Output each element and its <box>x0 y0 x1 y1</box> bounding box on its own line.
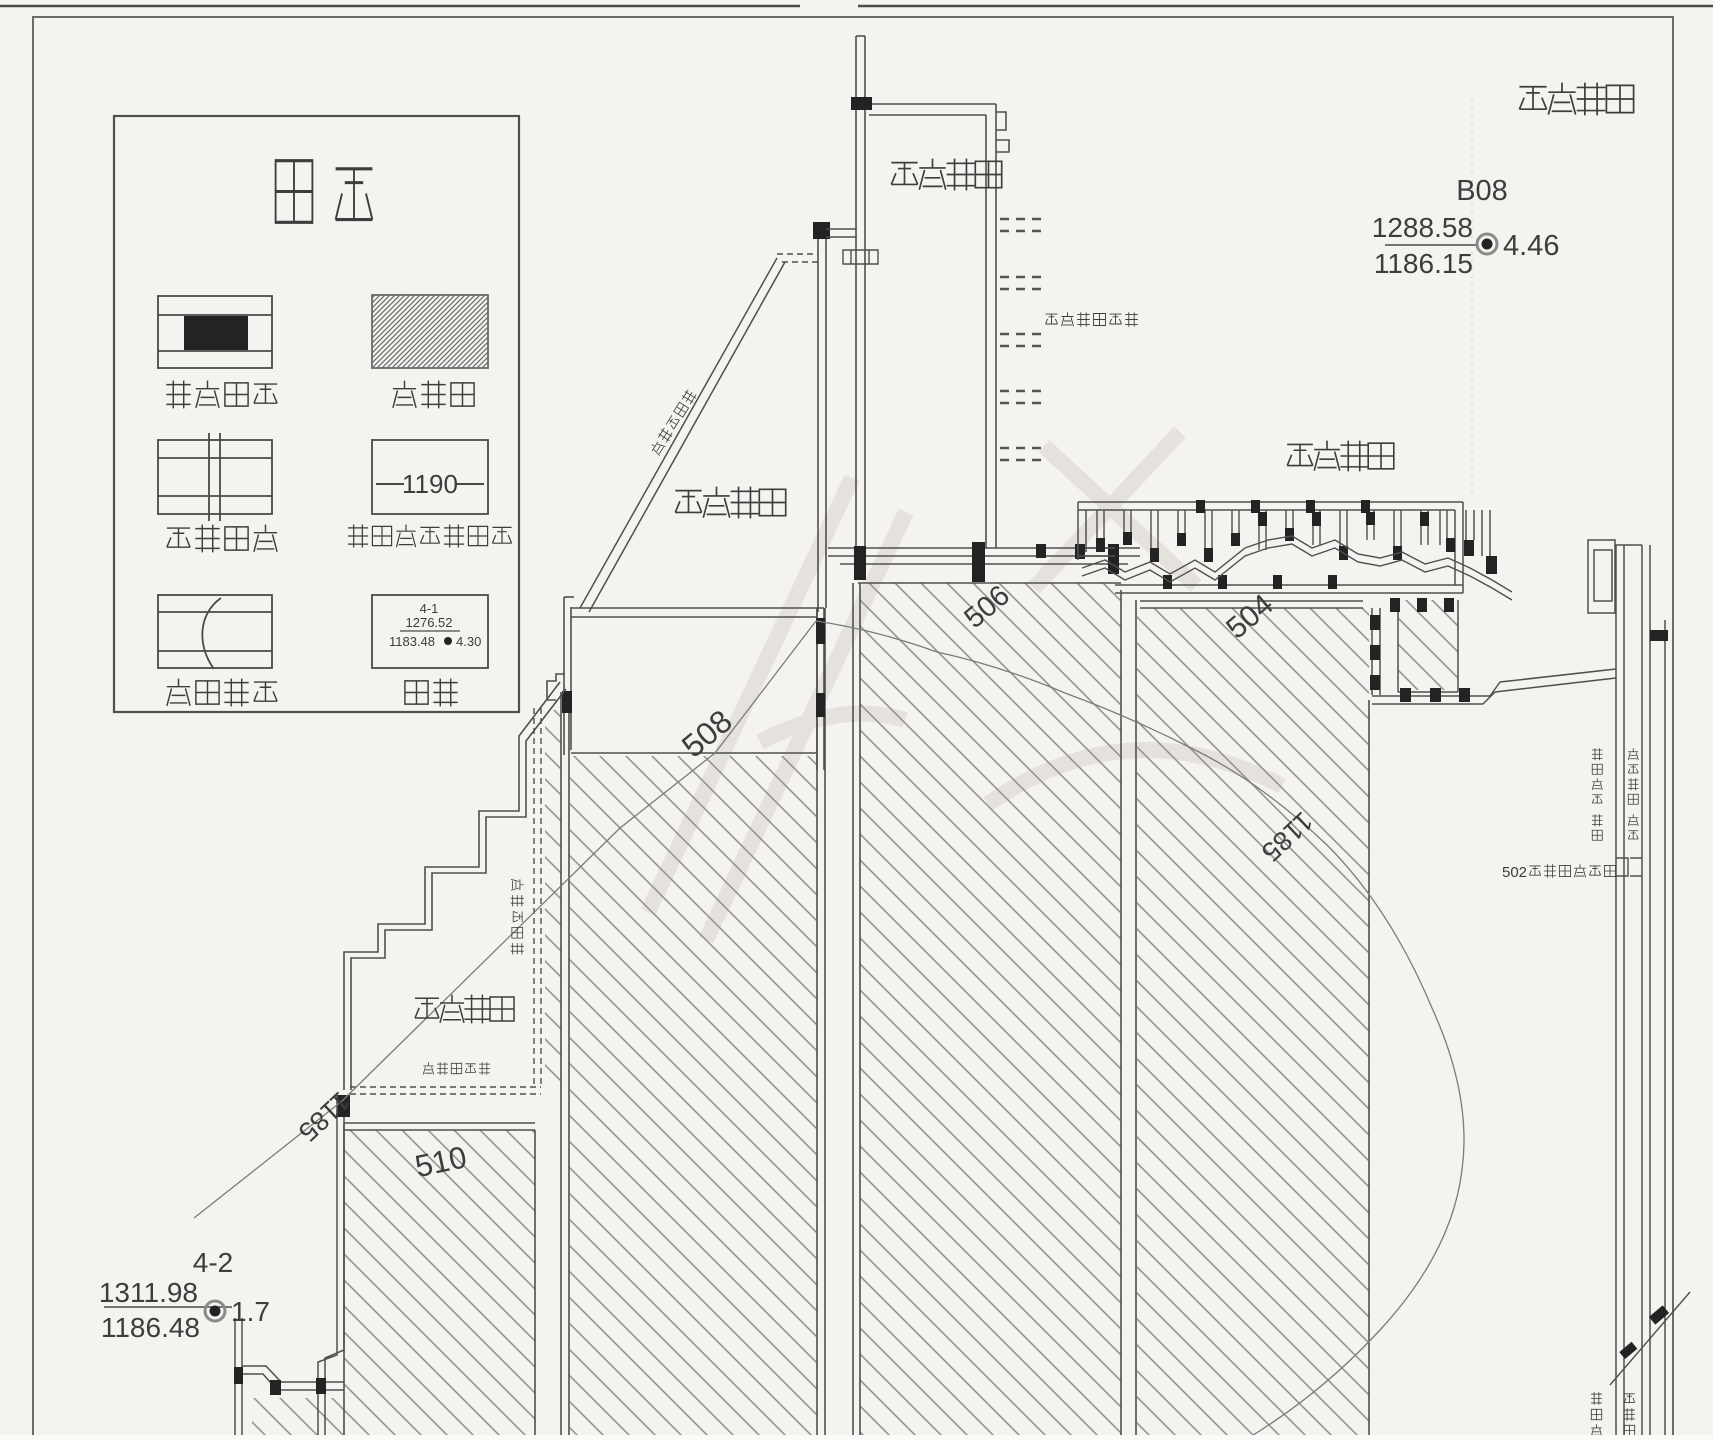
svg-text:502: 502 <box>1502 864 1527 881</box>
svg-text:1186.48: 1186.48 <box>101 1312 200 1343</box>
svg-text:4-2: 4-2 <box>193 1247 233 1278</box>
svg-text:1311.98: 1311.98 <box>99 1277 198 1308</box>
svg-text:1183.48: 1183.48 <box>389 634 435 649</box>
svg-text:1.7: 1.7 <box>231 1296 270 1327</box>
svg-text:1190: 1190 <box>402 469 458 499</box>
svg-text:1288.58: 1288.58 <box>1372 212 1473 243</box>
svg-text:B08: B08 <box>1456 175 1508 207</box>
svg-text:4.46: 4.46 <box>1503 230 1559 262</box>
svg-text:4.30: 4.30 <box>456 634 481 649</box>
svg-text:4-1: 4-1 <box>420 601 439 616</box>
svg-text:1186.15: 1186.15 <box>1374 248 1473 279</box>
svg-text:1276.52: 1276.52 <box>406 615 453 630</box>
